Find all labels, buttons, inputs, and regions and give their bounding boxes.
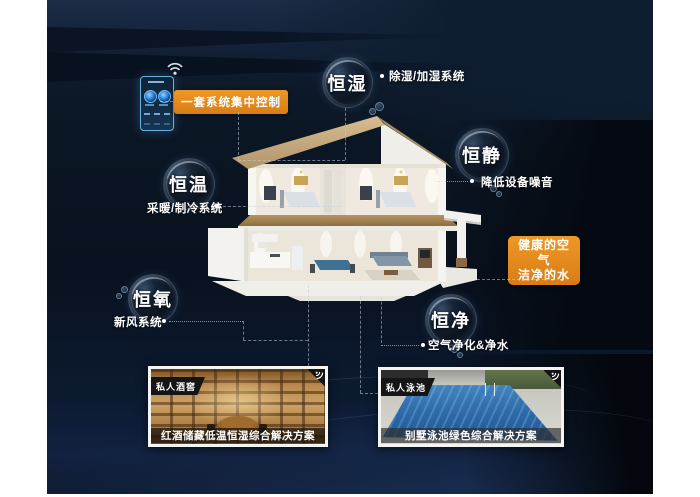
bullet-dot <box>380 74 384 78</box>
bg-streak <box>47 52 587 82</box>
smart-home-infographic: 一套系统集中控制 恒湿 除湿/加湿系统 恒静 降低设备噪音 恒温 采暖/制冷系统 <box>0 0 700 497</box>
connector-oxygen <box>169 321 243 322</box>
bullet-dot <box>162 319 166 323</box>
connector-pool <box>360 393 378 394</box>
connector-pool <box>360 296 361 393</box>
card-badge: 私人酒窖 <box>151 377 205 395</box>
pool-card: 私人泳池 别墅泳池绿色综合解决方案 <box>378 367 564 447</box>
connector-temperature <box>223 206 340 207</box>
connector-quiet <box>435 181 468 182</box>
mini-bubble <box>375 102 384 111</box>
connector-purity-riser <box>381 297 382 343</box>
connector-highlight <box>477 279 545 280</box>
mini-bubble <box>496 191 502 197</box>
wine-cellar-card: 私人酒窖 红酒储藏低温恒湿综合解决方案 <box>148 366 328 447</box>
bullet-dot <box>470 179 474 183</box>
bubble-label: 恒净 <box>431 307 471 333</box>
connector-phone-label <box>160 101 173 102</box>
pool-ladder-icon <box>485 383 495 396</box>
wifi-corner-icon <box>308 369 325 386</box>
connector-label-house <box>238 112 239 160</box>
connector-roof <box>238 160 345 161</box>
phone-stat-column <box>144 113 150 125</box>
bubble-label: 恒静 <box>462 142 502 168</box>
note-hvac-system: 采暖/制冷系统 <box>147 200 223 216</box>
dial-label <box>159 104 168 106</box>
connector-oxygen-elbow <box>243 340 308 341</box>
connector-humidity <box>345 108 346 160</box>
wine-cellar-photo: 私人酒窖 红酒储藏低温恒湿综合解决方案 <box>151 369 325 444</box>
card-badge: 私人泳池 <box>381 378 435 396</box>
phone-stat-column <box>164 113 170 125</box>
connector-purity <box>381 345 419 346</box>
card-caption: 别墅泳池绿色综合解决方案 <box>381 428 561 443</box>
dial-label <box>145 104 154 106</box>
control-dial-icon <box>144 90 157 103</box>
connector-oxygen-elbow <box>243 321 244 340</box>
bubble-label: 恒湿 <box>328 70 368 96</box>
highlight-line2: 洁净的水 <box>513 268 575 283</box>
pool-photo: 私人泳池 别墅泳池绿色综合解决方案 <box>381 370 561 444</box>
note-fresh-air-system: 新风系统 <box>114 314 162 330</box>
card-caption: 红酒储藏低温恒湿综合解决方案 <box>151 428 325 443</box>
bullet-dot <box>421 343 425 347</box>
healthy-air-water-box: 健康的空气 洁净的水 <box>508 236 580 285</box>
note-purification-system: 空气净化&净水 <box>428 337 509 353</box>
house-cutaway-illustration <box>200 112 485 302</box>
smart-home-control-panel <box>140 76 174 131</box>
note-humidity-system: 除湿/加湿系统 <box>389 68 465 84</box>
mini-bubble <box>121 286 128 293</box>
phone-status-bar <box>148 81 164 83</box>
central-control-label: 一套系统集中控制 <box>174 90 288 114</box>
highlight-line1: 健康的空气 <box>513 238 575 268</box>
phone-stat-column <box>154 113 160 125</box>
bubble-constant-humidity: 恒湿 <box>322 57 373 108</box>
note-noise-reduction: 降低设备噪音 <box>481 174 553 190</box>
wifi-corner-icon <box>544 370 561 387</box>
wifi-icon <box>166 61 184 76</box>
dark-background: 一套系统集中控制 恒湿 除湿/加湿系统 恒静 降低设备噪音 恒温 采暖/制冷系统 <box>47 0 653 494</box>
bullet-dot <box>215 204 219 208</box>
bubble-label: 恒温 <box>169 171 209 197</box>
bubble-label: 恒氧 <box>133 286 173 312</box>
bg-streak <box>47 24 467 54</box>
connector-wine-cellar <box>308 285 309 366</box>
mini-bubble <box>116 293 122 299</box>
connector-highlight <box>545 269 546 279</box>
